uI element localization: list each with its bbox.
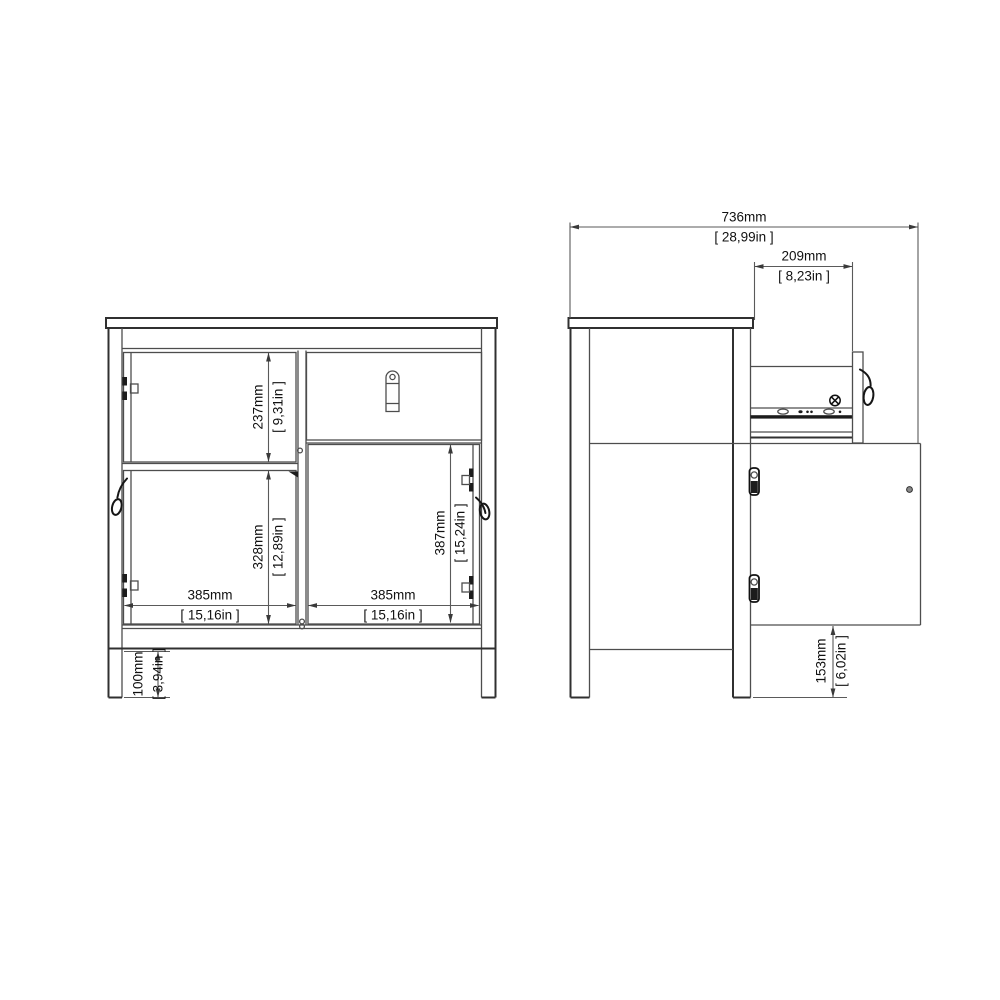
product-dimension-diagram: 237mm [ 9,31in ] 328mm [ 12,89in ] 387mm… — [0, 0, 1000, 1000]
dim-in-value: [ 12,89in ] — [271, 517, 286, 576]
strap-handle-icon — [860, 370, 875, 406]
dim-mm-value: 328mm — [251, 517, 266, 576]
dim-mm-value: 237mm — [251, 381, 266, 433]
dim-in-value: [ 15,16in ] — [180, 608, 239, 623]
hinge-icon — [750, 575, 760, 602]
hinge-icon — [123, 377, 139, 400]
front-top-board — [106, 318, 497, 328]
hinge-icon — [462, 469, 474, 492]
dim-front-right-door-height: 387mm [ 15,24in ] — [433, 503, 468, 562]
dim-in-value: [ 28,99in ] — [714, 230, 773, 245]
front-dimension-lines — [124, 353, 479, 698]
side-dimension-lines — [570, 223, 918, 698]
side-top-board — [569, 318, 754, 328]
dim-in-value: [ 15,16in ] — [363, 608, 422, 623]
side-view-linework — [569, 223, 921, 698]
side-drawer-front — [853, 352, 864, 443]
dim-side-clearance-height: 153mm [ 6,02in ] — [814, 635, 849, 687]
front-drawer — [307, 353, 482, 441]
dim-front-left-door-height: 328mm [ 12,89in ] — [251, 517, 286, 576]
dim-mm-value: 387mm — [433, 503, 448, 562]
hinge-icon — [123, 574, 139, 597]
dim-side-drawer-extension: 209mm [ 8,23in ] — [778, 249, 830, 284]
dim-in-value: [ 3,94in ] — [151, 648, 166, 700]
strap-handle-icon — [110, 479, 127, 516]
dim-in-value: [ 9,31in ] — [271, 381, 286, 433]
dim-front-right-width: 385mm [ 15,16in ] — [363, 588, 422, 623]
dim-in-value: [ 8,23in ] — [778, 269, 830, 284]
dim-front-upper-door-height: 237mm [ 9,31in ] — [251, 381, 286, 433]
handle-screw-dot — [907, 487, 913, 493]
drawer-handle-icon — [386, 371, 399, 412]
dim-side-depth-open: 736mm [ 28,99in ] — [714, 210, 773, 245]
dim-mm-value: 209mm — [778, 249, 830, 264]
dim-front-left-width: 385mm [ 15,16in ] — [180, 588, 239, 623]
dim-in-value: [ 6,02in ] — [834, 635, 849, 687]
dim-mm-value: 100mm — [131, 648, 146, 700]
dim-front-leg-height: 100mm [ 3,94in ] — [131, 648, 166, 700]
hinge-icon — [462, 576, 474, 599]
hinge-icon — [750, 468, 760, 495]
dim-in-value: [ 15,24in ] — [453, 503, 468, 562]
dim-mm-value: 153mm — [814, 635, 829, 687]
dim-mm-value: 385mm — [180, 588, 239, 603]
screw-icon — [830, 395, 840, 405]
drawing-linework — [0, 0, 1000, 1000]
side-open-door — [751, 444, 921, 626]
strap-handle-icon — [476, 498, 491, 521]
dim-mm-value: 736mm — [714, 210, 773, 225]
dim-mm-value: 385mm — [363, 588, 422, 603]
